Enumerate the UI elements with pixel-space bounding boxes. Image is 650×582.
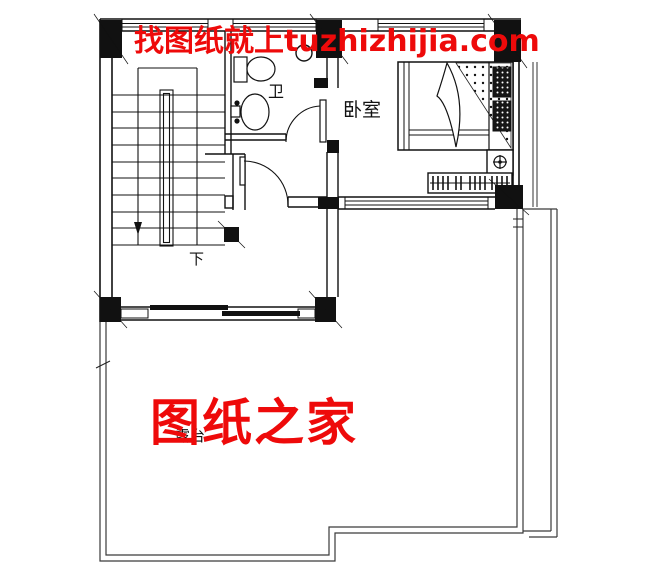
column-diagonals — [94, 14, 529, 328]
terrace-railing — [100, 209, 557, 561]
toilet-icon — [234, 57, 275, 82]
pillow — [493, 101, 511, 131]
plan-labels: 露台 卫 卧室 下 — [175, 82, 381, 445]
bed — [398, 62, 513, 150]
nightstand — [487, 150, 513, 175]
hall-door — [240, 157, 288, 205]
interior-wall — [288, 58, 338, 297]
floorplan-drawing: 露台 卫 卧室 下 — [0, 0, 650, 582]
bedroom-label: 卧室 — [343, 99, 381, 121]
pillow — [493, 67, 511, 97]
bedroom-bottom-wall — [338, 197, 495, 209]
floorplan-page: 露台 卫 卧室 下 找图纸就上tuzhizhijia.com 图纸之家 — [0, 0, 650, 582]
bathroom-label: 卫 — [268, 82, 284, 101]
stair-down-label: 下 — [189, 250, 204, 268]
watermark-site-url: 找图纸就上tuzhizhijia.com — [134, 27, 540, 57]
sink-icon — [231, 94, 269, 130]
eave-line — [533, 62, 537, 207]
staircase — [112, 68, 225, 246]
bedroom-door — [286, 78, 328, 142]
watermark-site-name: 图纸之家 — [150, 398, 358, 448]
